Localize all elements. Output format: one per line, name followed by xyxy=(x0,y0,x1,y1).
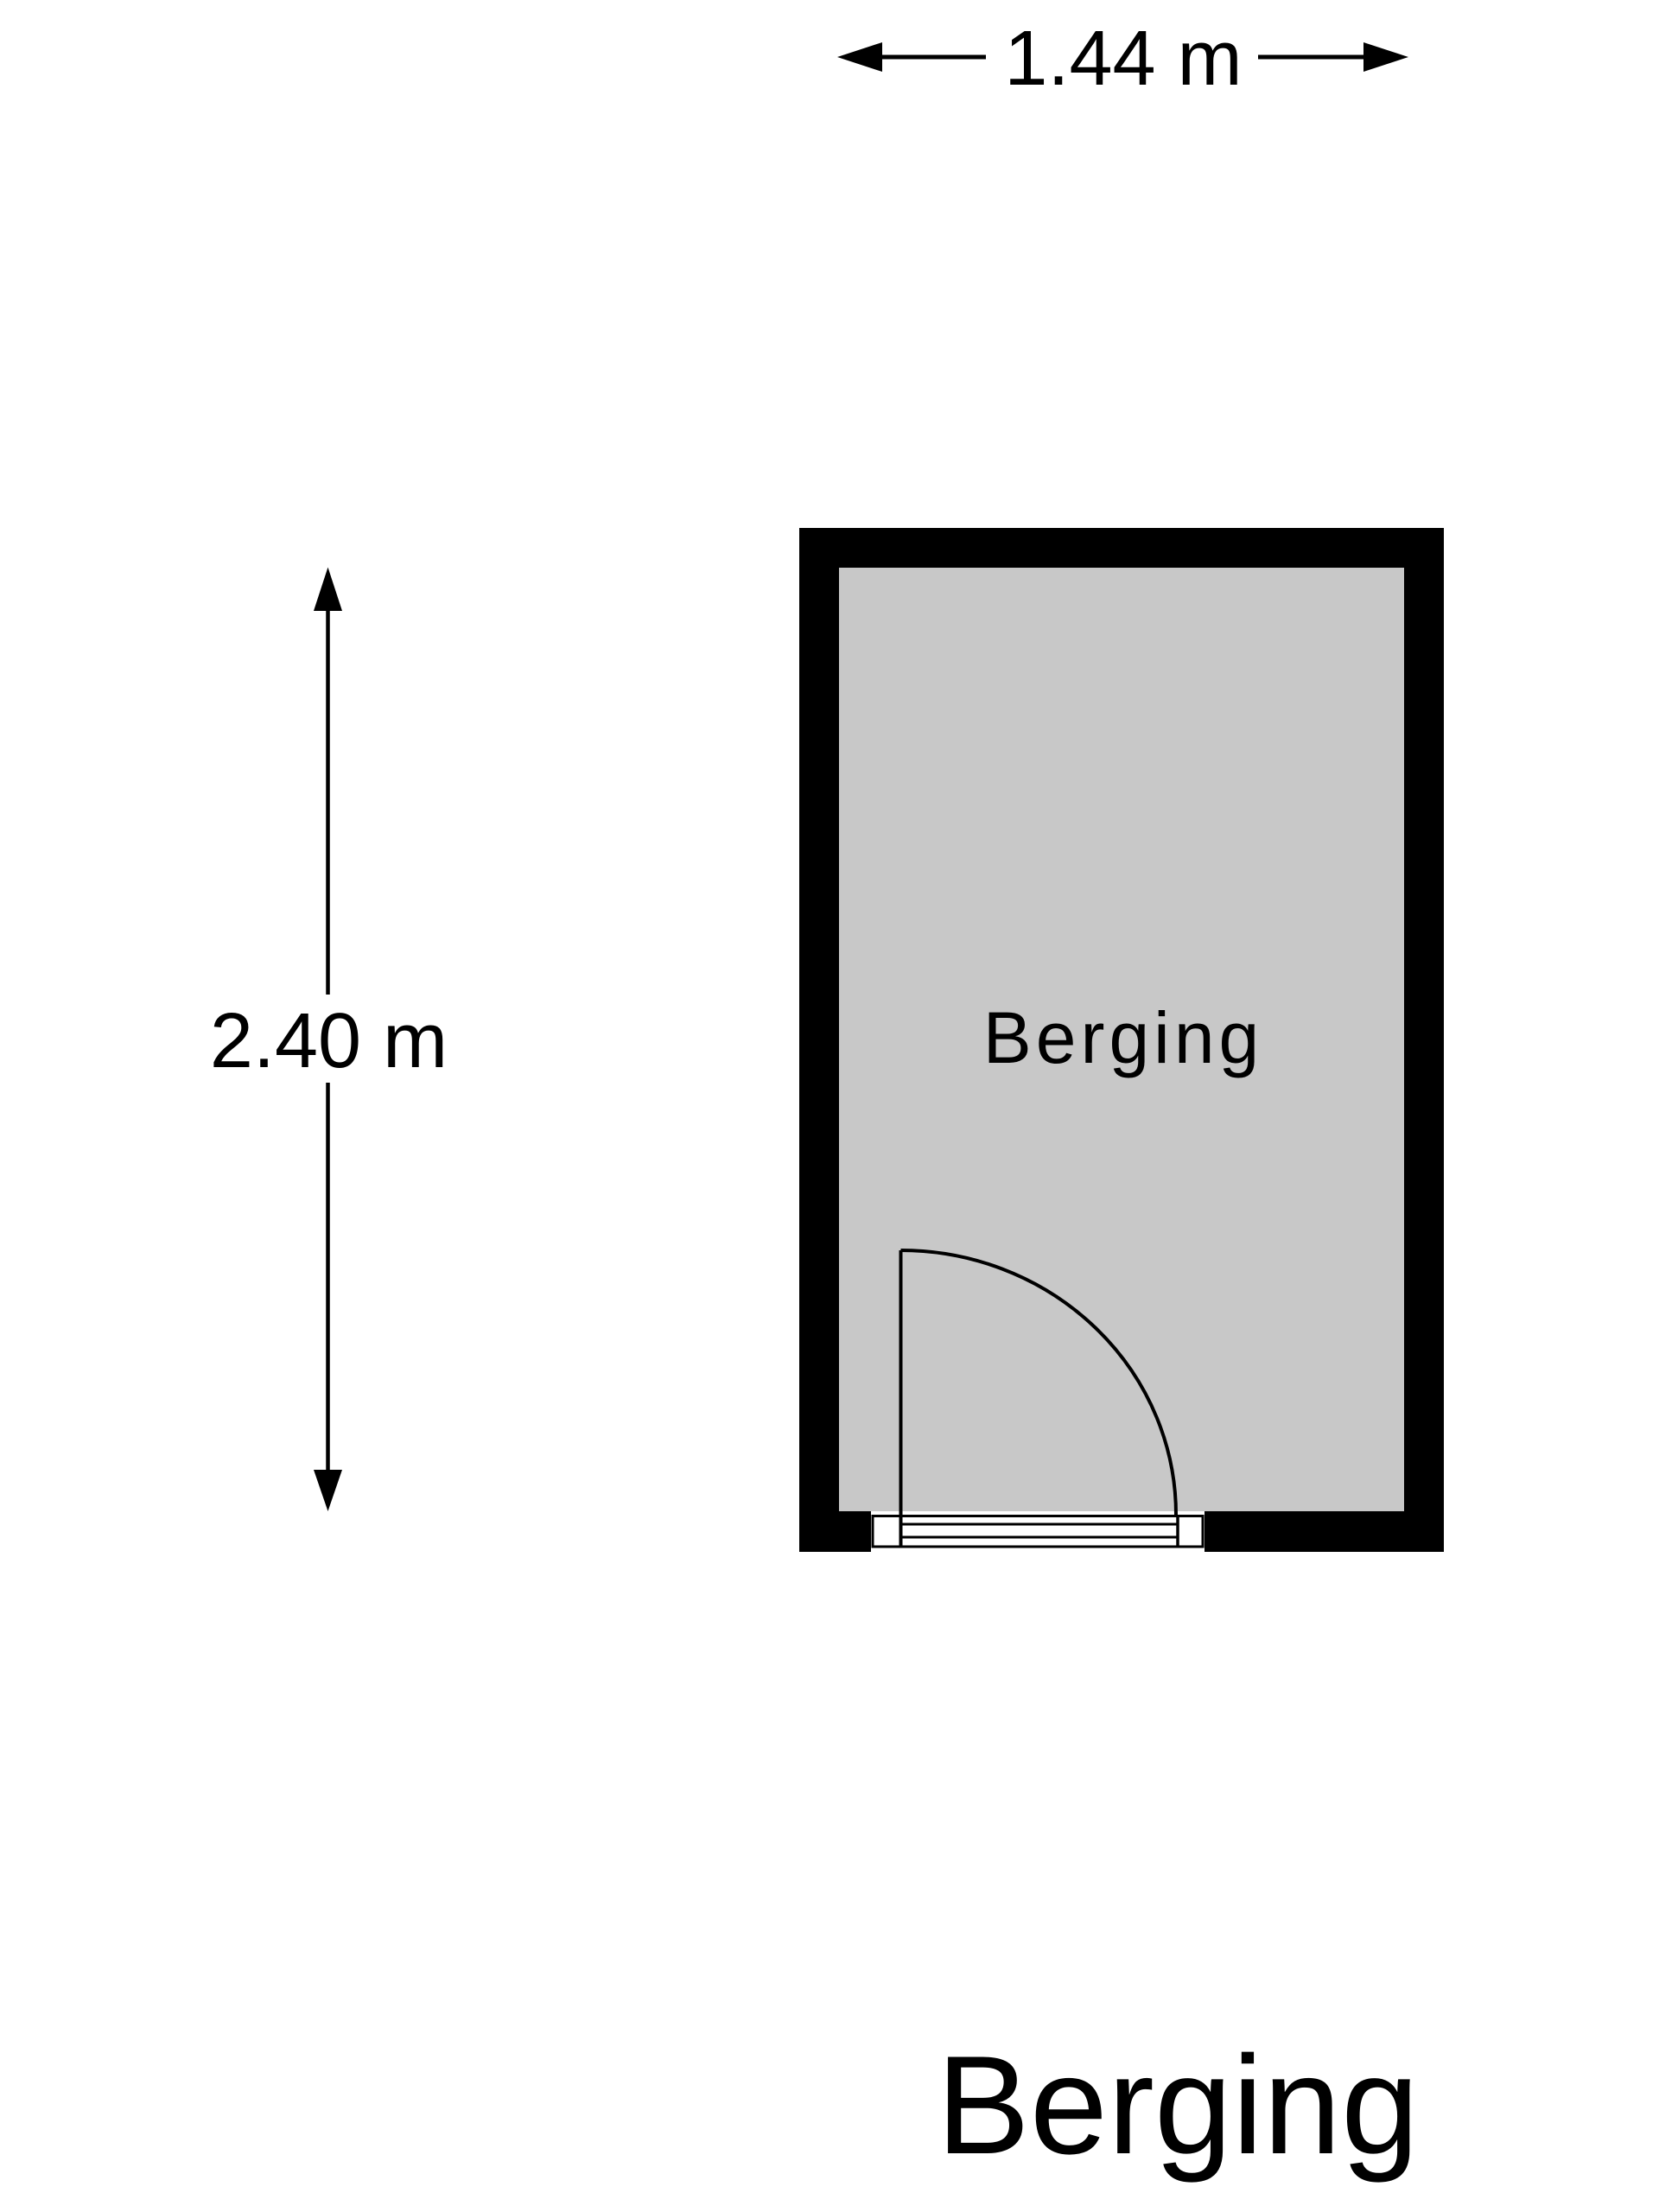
svg-text:1.44 m: 1.44 m xyxy=(1004,16,1242,102)
svg-text:Berging: Berging xyxy=(983,997,1264,1078)
svg-text:2.40 m: 2.40 m xyxy=(210,998,448,1084)
svg-text:Berging: Berging xyxy=(937,2027,1419,2183)
